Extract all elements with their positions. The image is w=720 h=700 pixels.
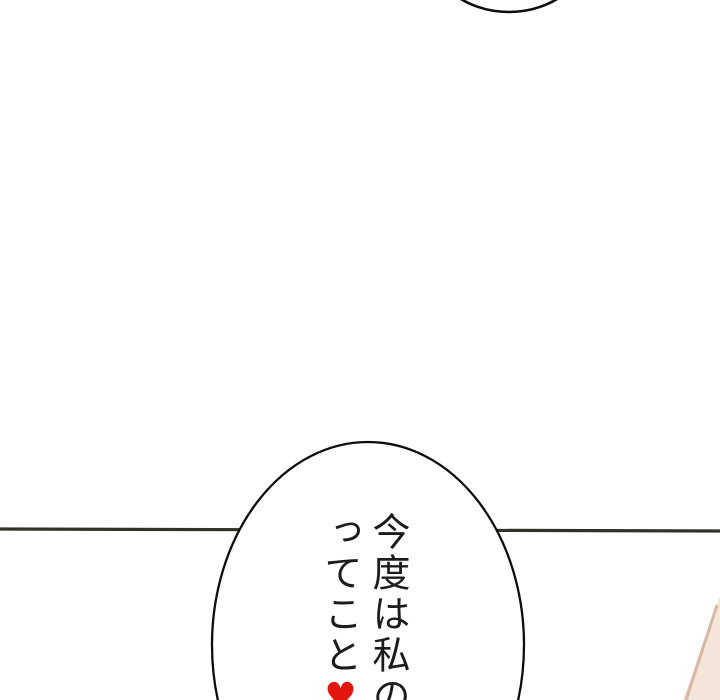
- comic-page: 今度は私の ってこと♥: [0, 0, 720, 700]
- speech-line-1: 今度は私の: [364, 512, 412, 700]
- top-speech-bubble: [424, 0, 594, 12]
- heart-icon: ♥: [320, 676, 361, 700]
- speech-bubble-text: 今度は私の ってこと♥: [316, 512, 412, 700]
- speech-line-2-text: ってこと: [318, 512, 362, 676]
- speech-line-2: ってこと♥: [316, 512, 364, 700]
